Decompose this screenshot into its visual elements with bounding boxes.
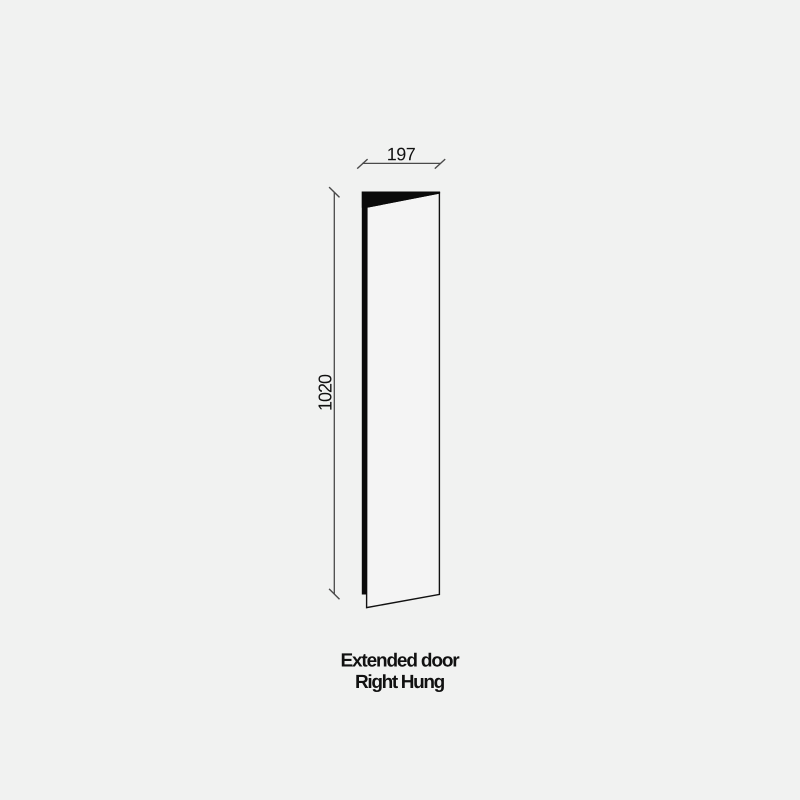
svg-text:197: 197	[387, 144, 416, 164]
svg-text:Extended door: Extended door	[340, 650, 460, 671]
svg-text:1020: 1020	[315, 374, 335, 411]
svg-text:Right Hung: Right Hung	[355, 672, 445, 693]
